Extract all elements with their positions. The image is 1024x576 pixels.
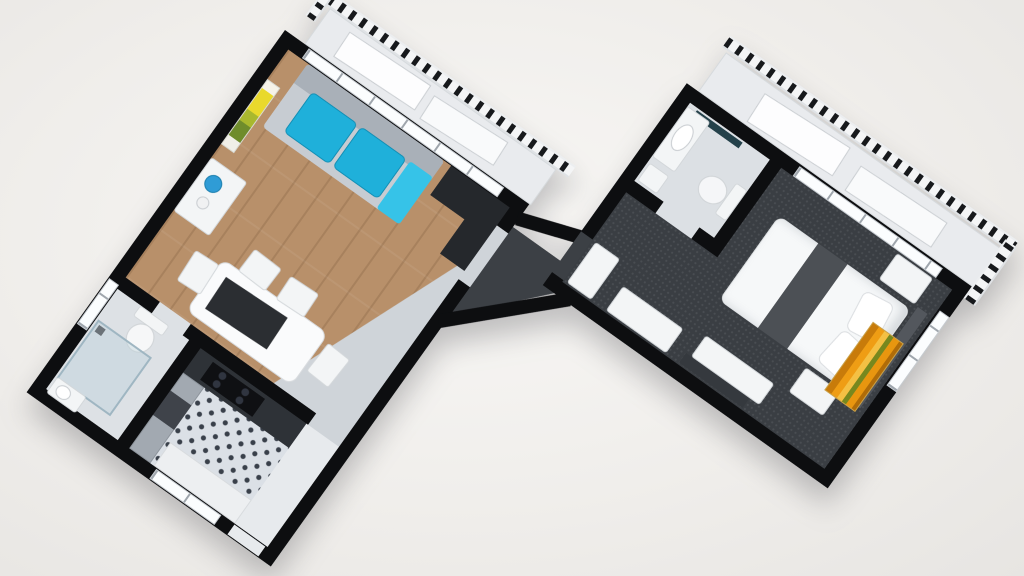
floor-plan-canvas (0, 0, 1024, 576)
